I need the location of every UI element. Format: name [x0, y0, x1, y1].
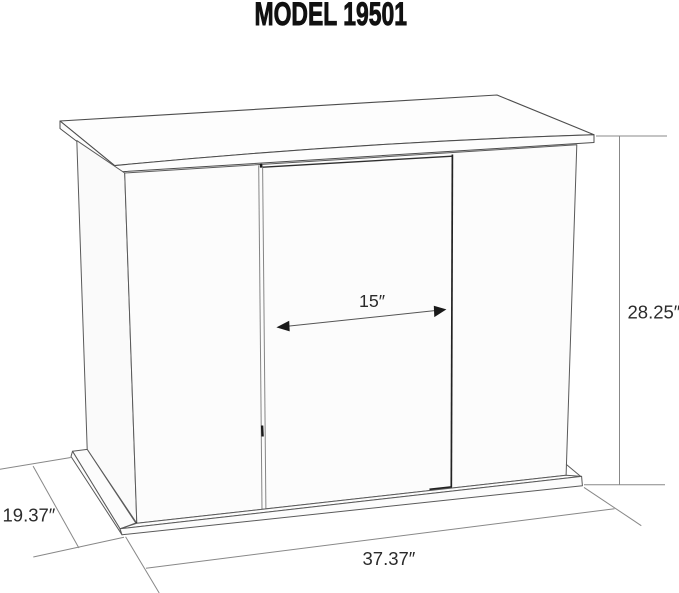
- svg-text:37.37″: 37.37″: [363, 548, 416, 569]
- svg-text:19.37″: 19.37″: [3, 505, 56, 526]
- svg-text:15″: 15″: [359, 291, 385, 311]
- svg-text:28.25″: 28.25″: [628, 302, 679, 323]
- svg-text:MODEL 19501: MODEL 19501: [255, 0, 408, 32]
